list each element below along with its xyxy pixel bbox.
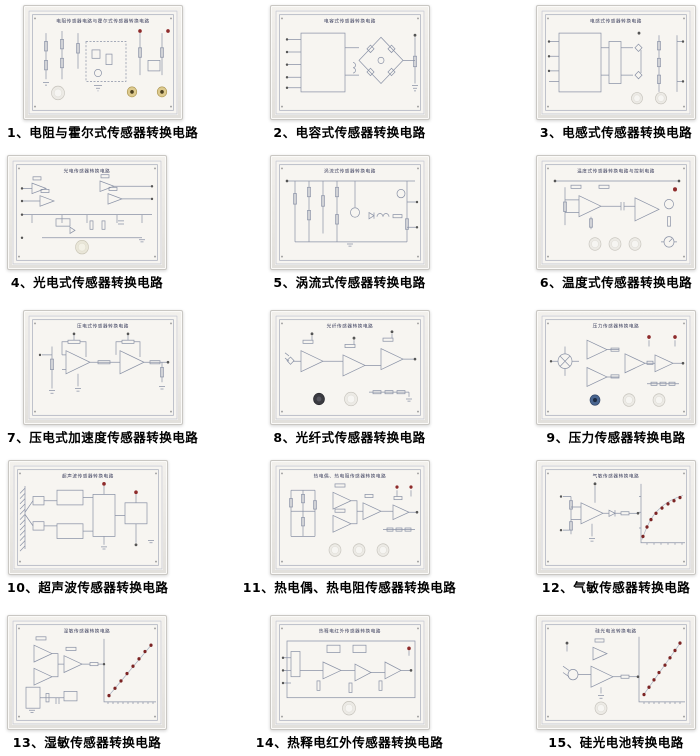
characteristic-curve-axes: [639, 484, 685, 545]
panel-face: 涡流式传感器转换电路: [275, 160, 425, 265]
catalog-cell-14: 热释电红外传感器转换电路: [233, 610, 466, 756]
catalog-cell-10: 超声波传感器转换电路: [0, 455, 233, 610]
schematic: [22, 175, 152, 242]
panel-artwork: 热释电红外传感器转换电路: [275, 620, 425, 725]
schematic: [42, 334, 168, 393]
panel-caption: 13、湿敏传感器转换电路: [13, 736, 161, 750]
catalog-cell-6: 温度式传感器转换电路与控制电路: [466, 150, 700, 305]
led-indicators: [102, 482, 138, 494]
catalog-cell-7: 压电式传感器转换电路: [0, 305, 233, 455]
panel-face: 超声波传感器转换电路: [13, 465, 163, 570]
terminal-dots: [285, 34, 416, 89]
curve-data-dots: [641, 496, 681, 538]
catalog-cell-2: 电容式传感器转换电路: [233, 0, 466, 150]
circuit-panel-5: 涡流式传感器转换电路: [270, 155, 430, 270]
panel-face: 温度式传感器转换电路与控制电路: [541, 160, 691, 265]
panel-artwork: 气敏传感器转换电路: [541, 465, 691, 570]
terminal-dots: [566, 642, 640, 678]
circuit-panel-14: 热释电红外传感器转换电路: [270, 615, 430, 730]
corner-screw-icons: [34, 322, 172, 412]
panel-caption: 8、光纤式传感器转换电路: [273, 431, 425, 445]
knob: [329, 544, 389, 557]
board-title: 电阻传感器电路与霍尔式传感器转换电路: [56, 17, 149, 24]
panel-artwork: 涡流式传感器转换电路: [275, 160, 425, 265]
panel-artwork: 压力传感器转换电路: [541, 315, 691, 420]
schematic: [549, 33, 683, 92]
panel-artwork: 超声波传感器转换电路: [13, 465, 163, 570]
schematic: [26, 637, 104, 713]
schematic: [285, 334, 415, 401]
corner-screw-icons: [19, 472, 157, 562]
circuit-panel-1: 电阻传感器电路与霍尔式传感器转换电路: [23, 5, 183, 120]
knob: [76, 240, 89, 254]
schematic: [289, 484, 417, 537]
circuit-panel-6: 温度式传感器转换电路与控制电路: [536, 155, 696, 270]
board-title: 温度式传感器转换电路与控制电路: [577, 167, 655, 174]
circuit-panel-9: 压力传感器转换电路: [536, 310, 696, 425]
catalog-cell-13: 湿敏传感器转换电路: [0, 610, 233, 756]
board-title: 硅光电池转换电路: [595, 627, 636, 634]
terminal-dots: [38, 333, 169, 364]
schematic: [287, 181, 417, 246]
panel-face: 电感式传感器转换电路: [541, 10, 691, 115]
panel-face: 电容式传感器转换电路: [275, 10, 425, 115]
schematic: [563, 486, 637, 541]
corner-screw-icons: [547, 627, 685, 717]
knob: [623, 394, 665, 407]
circuit-panel-15: 硅光电池转换电路: [536, 615, 696, 730]
socket-yellow: [127, 87, 167, 97]
terminal-dots: [285, 180, 418, 229]
led-indicators: [647, 335, 677, 339]
board-title: 热电偶、热电阻传感器转换电路: [313, 472, 386, 479]
board-title: 电容式传感器转换电路: [324, 17, 376, 24]
panel-artwork: 光纤传感器转换电路: [275, 315, 425, 420]
led-indicators: [407, 646, 411, 650]
panel-caption: 12、气敏传感器转换电路: [542, 581, 690, 595]
circuit-panel-11: 热电偶、热电阻传感器转换电路: [270, 460, 430, 575]
panel-caption: 14、热释电红外传感器转换电路: [256, 736, 443, 750]
schematic: [20, 486, 154, 551]
panel-face: 热电偶、热电阻传感器转换电路: [275, 465, 425, 570]
circuit-panel-12: 气敏传感器转换电路: [536, 460, 696, 575]
terminal-dots: [134, 543, 137, 546]
panel-face: 光电传感器转换电路: [12, 160, 162, 265]
circuit-panel-10: 超声波传感器转换电路: [8, 460, 168, 575]
schematic: [555, 181, 679, 247]
knob: [342, 701, 355, 715]
circuit-panel-7: 压电式传感器转换电路: [23, 310, 183, 425]
catalog-grid: 电阻传感器电路与霍尔式传感器转换电路: [0, 0, 700, 756]
catalog-cell-1: 电阻传感器电路与霍尔式传感器转换电路: [0, 0, 233, 150]
schematic: [283, 641, 415, 698]
catalog-cell-12: 气敏传感器转换电路: [466, 455, 700, 610]
panel-artwork: 电阻传感器电路与霍尔式传感器转换电路: [28, 10, 178, 115]
circuit-panel-13: 湿敏传感器转换电路: [7, 615, 167, 730]
knob: [632, 92, 667, 104]
panel-artwork: 硅光电池转换电路: [541, 620, 691, 725]
panel-artwork: 压电式传感器转换电路: [28, 315, 178, 420]
board-title: 超声波传感器转换电路: [62, 472, 114, 479]
panel-face: 压电式传感器转换电路: [28, 315, 178, 420]
terminal-dots: [21, 185, 153, 239]
panel-caption: 5、涡流式传感器转换电路: [273, 276, 425, 290]
knob: [51, 86, 64, 100]
board-title: 光纤传感器转换电路: [326, 322, 373, 329]
panel-artwork: 温度式传感器转换电路与控制电路: [541, 160, 691, 265]
panel-face: 气敏传感器转换电路: [541, 465, 691, 570]
corner-screw-icons: [547, 472, 685, 562]
characteristic-curve-axes: [104, 639, 156, 704]
terminal-dots: [103, 663, 105, 666]
board-title: 涡流式传感器转换电路: [324, 167, 376, 174]
board-title: 光电传感器转换电路: [64, 167, 111, 174]
circuit-panel-2: 电容式传感器转换电路: [270, 5, 430, 120]
catalog-cell-5: 涡流式传感器转换电路: [233, 150, 466, 305]
terminal-dots: [548, 32, 684, 83]
knob-blue: [590, 395, 600, 406]
terminal-dots: [310, 330, 416, 360]
knob: [595, 702, 607, 715]
catalog-cell-8: 光纤传感器转换电路: [233, 305, 466, 455]
led-indicators: [395, 485, 412, 488]
panel-caption: 1、电阻与霍尔式传感器转换电路: [7, 126, 198, 140]
panel-artwork: 电感式传感器转换电路: [541, 10, 691, 115]
board-title: 气敏传感器转换电路: [593, 472, 640, 479]
panel-artwork: 光电传感器转换电路: [12, 160, 162, 265]
corner-screw-icons: [281, 17, 419, 107]
terminal-dots: [415, 511, 418, 514]
board-title: 压力传感器转换电路: [593, 322, 640, 329]
terminal-dots: [550, 360, 685, 365]
board-title: 湿敏传感器转换电路: [64, 627, 111, 634]
knob-dark: [313, 393, 324, 405]
panel-caption: 6、温度式传感器转换电路: [540, 276, 692, 290]
knob: [589, 238, 641, 251]
board-title: 压电式传感器转换电路: [77, 322, 129, 329]
panel-artwork: 热电偶、热电阻传感器转换电路: [275, 465, 425, 570]
board-title: 电感式传感器转换电路: [590, 17, 642, 24]
circuit-panel-4: 光电传感器转换电路: [7, 155, 167, 270]
panel-caption: 10、超声波传感器转换电路: [7, 581, 168, 595]
catalog-cell-4: 光电传感器转换电路: [0, 150, 233, 305]
panel-face: 压力传感器转换电路: [541, 315, 691, 420]
circuit-panel-8: 光纤传感器转换电路: [270, 310, 430, 425]
panel-caption: 4、光电式传感器转换电路: [11, 276, 163, 290]
catalog-cell-15: 硅光电池转换电路: [466, 610, 700, 756]
circuit-panel-3: 电感式传感器转换电路: [536, 5, 696, 120]
knob: [344, 392, 357, 406]
schematic: [287, 33, 418, 92]
board-title: 热释电红外传感器转换电路: [318, 627, 380, 634]
led-indicators: [138, 29, 170, 33]
catalog-cell-3: 电感式传感器转换电路: [466, 0, 700, 150]
panel-caption: 15、硅光电池转换电路: [548, 736, 683, 750]
corner-screw-icons: [18, 627, 156, 717]
schematic: [563, 639, 637, 698]
catalog-cell-9: 压力传感器转换电路: [466, 305, 700, 455]
panel-caption: 3、电感式传感器转换电路: [540, 126, 692, 140]
schematic: [43, 31, 164, 91]
panel-caption: 9、压力传感器转换电路: [546, 431, 685, 445]
panel-face: 热释电红外传感器转换电路: [275, 620, 425, 725]
panel-caption: 11、热电偶、热电阻传感器转换电路: [243, 581, 456, 595]
panel-face: 光纤传感器转换电路: [275, 315, 425, 420]
panel-face: 电阻传感器电路与霍尔式传感器转换电路: [28, 10, 178, 115]
panel-caption: 7、压电式加速度传感器转换电路: [7, 431, 198, 445]
panel-artwork: 湿敏传感器转换电路: [12, 620, 162, 725]
catalog-cell-11: 热电偶、热电阻传感器转换电路: [233, 455, 466, 610]
panel-caption: 2、电容式传感器转换电路: [273, 126, 425, 140]
panel-face: 硅光电池转换电路: [541, 620, 691, 725]
panel-face: 湿敏传感器转换电路: [12, 620, 162, 725]
led-indicators: [673, 187, 677, 191]
panel-artwork: 电容式传感器转换电路: [275, 10, 425, 115]
schematic: [551, 340, 683, 386]
characteristic-curve-axes: [639, 637, 685, 704]
